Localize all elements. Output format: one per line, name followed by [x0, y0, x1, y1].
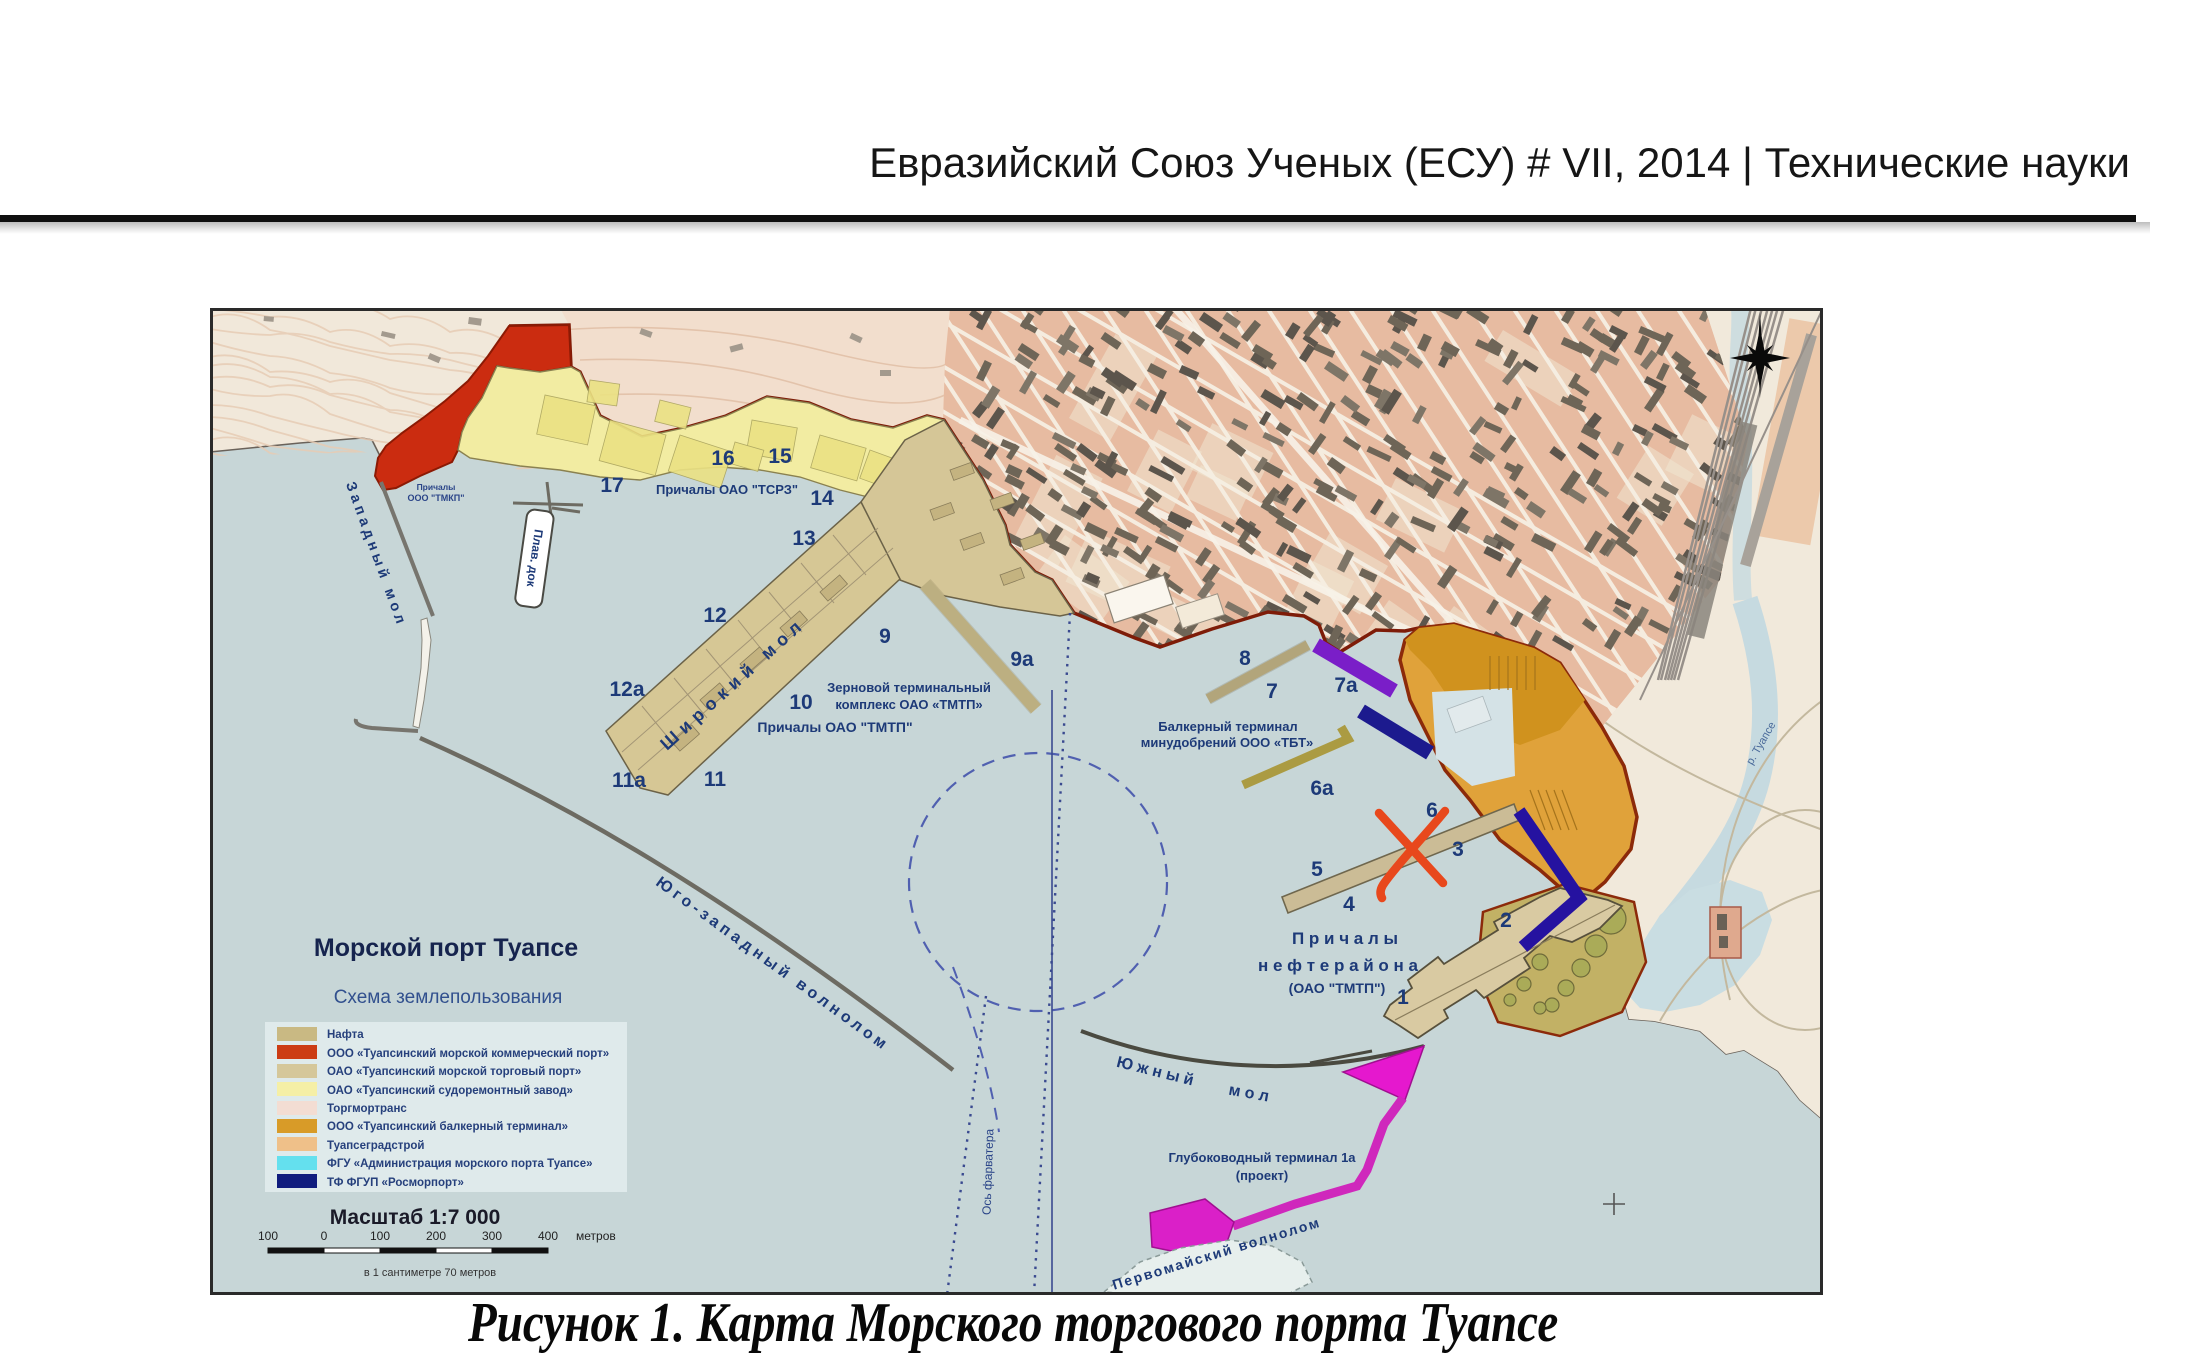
svg-text:13: 13 [792, 527, 815, 550]
svg-text:ФГУ «Администрация морского по: ФГУ «Администрация морского порта Туапсе… [327, 1158, 592, 1170]
svg-text:9а: 9а [1010, 648, 1034, 671]
svg-text:3: 3 [1452, 838, 1464, 861]
svg-text:5: 5 [1311, 858, 1323, 881]
svg-text:Причалы ОАО "ТСРЗ": Причалы ОАО "ТСРЗ" [656, 482, 798, 497]
svg-text:(проект): (проект) [1236, 1168, 1289, 1183]
svg-text:9: 9 [879, 625, 891, 648]
svg-text:ООО «Туапсинский балкерный тер: ООО «Туапсинский балкерный терминал» [327, 1121, 568, 1133]
svg-text:2: 2 [1500, 909, 1512, 932]
svg-text:комплекс ОАО «ТМТП»: комплекс ОАО «ТМТП» [835, 697, 982, 712]
svg-text:11: 11 [704, 768, 727, 791]
svg-text:12а: 12а [609, 678, 644, 701]
svg-text:4: 4 [1343, 893, 1355, 916]
svg-text:15: 15 [768, 445, 792, 468]
svg-text:Морской порт Туапсе: Морской порт Туапсе [314, 934, 578, 962]
svg-text:Причалы: Причалы [417, 482, 456, 492]
svg-text:Балкерный терминал: Балкерный терминал [1158, 719, 1297, 734]
svg-text:1: 1 [1397, 986, 1409, 1009]
svg-text:6: 6 [1426, 799, 1438, 822]
svg-text:16: 16 [711, 447, 734, 470]
svg-text:12: 12 [703, 604, 726, 627]
svg-text:ОАО «Туапсинский морской торго: ОАО «Туапсинский морской торговый порт» [327, 1066, 581, 1078]
svg-text:300: 300 [482, 1229, 502, 1243]
svg-text:ОАО «Туапсинский судоремонтный: ОАО «Туапсинский судоремонтный завод» [327, 1085, 573, 1097]
svg-text:ООО «Туапсинский морской комме: ООО «Туапсинский морской коммерческий по… [327, 1048, 609, 1060]
svg-text:метров: метров [576, 1229, 616, 1243]
svg-text:Торгмортранс: Торгмортранс [327, 1103, 407, 1115]
svg-text:0: 0 [321, 1229, 328, 1243]
svg-text:Схема землепользования: Схема землепользования [334, 987, 563, 1008]
svg-text:ТФ ФГУП «Росморпорт»: ТФ ФГУП «Росморпорт» [327, 1177, 464, 1189]
svg-text:7а: 7а [1334, 674, 1358, 697]
svg-text:17: 17 [600, 474, 623, 497]
svg-text:в 1 сантиметре 70 метров: в 1 сантиметре 70 метров [364, 1267, 496, 1279]
svg-text:100: 100 [258, 1229, 278, 1243]
svg-text:П р и ч а л ы: П р и ч а л ы [1292, 929, 1398, 948]
svg-text:8: 8 [1239, 647, 1251, 670]
svg-text:200: 200 [426, 1229, 446, 1243]
svg-text:14: 14 [810, 487, 834, 510]
svg-text:Туапсеградстрой: Туапсеградстрой [327, 1140, 424, 1152]
svg-text:минудобрений ООО «ТБТ»: минудобрений ООО «ТБТ» [1141, 735, 1314, 750]
svg-text:100: 100 [370, 1229, 390, 1243]
svg-text:6а: 6а [1310, 777, 1334, 800]
svg-text:Нафта: Нафта [327, 1029, 364, 1041]
svg-text:н е ф т е р а й о н а: н е ф т е р а й о н а [1258, 956, 1419, 975]
svg-text:Масштаб 1:7 000: Масштаб 1:7 000 [330, 1206, 501, 1229]
svg-text:10: 10 [789, 691, 812, 714]
svg-text:ООО "ТМКП": ООО "ТМКП" [408, 493, 465, 503]
svg-text:(ОАО "ТМТП"): (ОАО "ТМТП") [1289, 980, 1386, 996]
svg-text:400: 400 [538, 1229, 558, 1243]
svg-text:Зерновой терминальный: Зерновой терминальный [827, 680, 991, 695]
svg-text:7: 7 [1266, 680, 1278, 703]
svg-text:Глубоководный терминал 1а: Глубоководный терминал 1а [1168, 1150, 1356, 1165]
svg-text:Причалы ОАО "ТМТП": Причалы ОАО "ТМТП" [757, 719, 912, 735]
svg-text:11а: 11а [612, 769, 646, 792]
